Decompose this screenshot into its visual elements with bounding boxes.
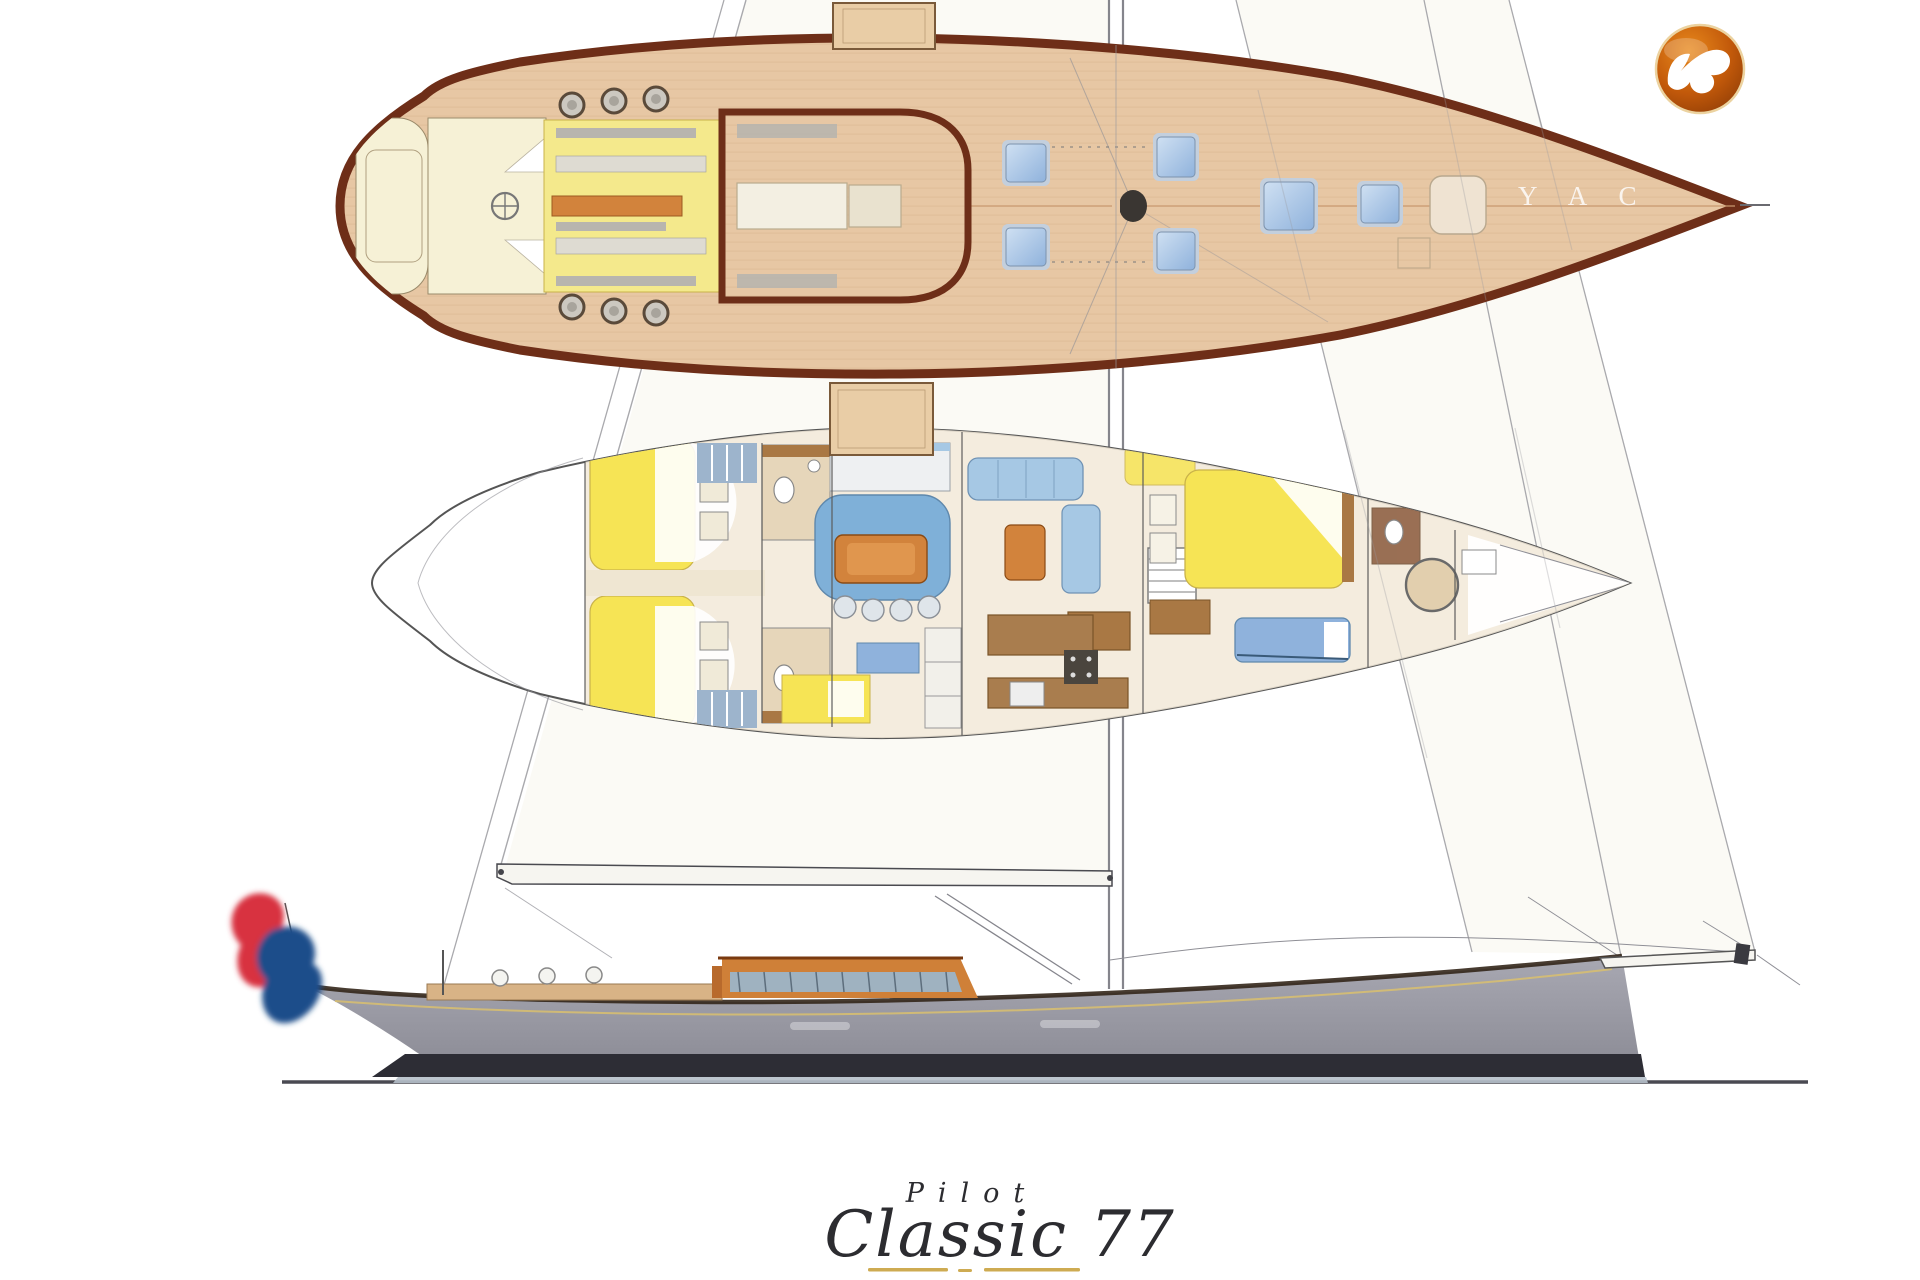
deck-vents [492, 967, 602, 986]
owner-headboard [1342, 476, 1354, 582]
hull-highlight-b [1040, 1020, 1100, 1028]
cockpit-bench-2 [556, 156, 706, 172]
toilet-aft-port [774, 477, 794, 503]
cockpit-well [428, 118, 546, 294]
seagull-badge-icon[interactable] [1655, 24, 1745, 114]
ensign-flag [231, 893, 322, 1023]
boom-end-fitting [498, 869, 504, 875]
galley-counter-outboard [988, 678, 1128, 708]
galley-seat [857, 643, 919, 673]
yacht-line-drawing: Y A C Pilot Classic 77 [0, 0, 1920, 1280]
galley-sink [1010, 682, 1044, 706]
coachroof-grabrail-stbd [737, 274, 837, 288]
watermark-text: Y A C [1518, 181, 1650, 211]
deckhouse-aft-step [712, 966, 722, 998]
boom-vang-b [947, 894, 1080, 980]
fridge-cabinet [925, 628, 961, 728]
anchor-windlass [1430, 176, 1486, 234]
crew-berth-pillow [1324, 622, 1348, 658]
dinette-table-top [847, 543, 915, 575]
model-name: Classic 77 [824, 1198, 1175, 1272]
cockpit-coaming-profile [427, 984, 722, 1000]
nav-seat [1062, 505, 1100, 593]
fwd-toilet [1385, 520, 1403, 544]
skylight-hatch-small [849, 185, 901, 227]
sink-aft-port [808, 460, 820, 472]
bowsprit-end-fitting [1734, 943, 1751, 965]
bow-shelf [1462, 550, 1496, 574]
coachroof-grabrail-port [737, 124, 837, 138]
cockpit-bench-3 [556, 222, 666, 231]
mainsheet [505, 888, 612, 958]
bobstay [1757, 955, 1800, 985]
galley-counter-inboard [988, 615, 1093, 655]
skylight-hatch-large [737, 183, 847, 229]
bow-locker-round [1406, 559, 1458, 611]
cockpit-bench-1 [556, 128, 696, 138]
pantry-bunk-sheet [828, 681, 864, 717]
head-aft-port-joinery [762, 445, 830, 457]
boot-top-light [393, 1077, 1648, 1083]
gooseneck-fitting [1107, 875, 1113, 881]
cockpit-bench-5 [556, 276, 696, 286]
companionway-box-plan [830, 383, 933, 455]
hull-highlight-a [790, 1022, 850, 1030]
companionway-hatch-top [833, 3, 935, 49]
aft-deck-locker [356, 118, 428, 294]
aft-passage [585, 570, 765, 596]
waterline-band [372, 1054, 1645, 1077]
fwd-wardrobe [1150, 600, 1210, 634]
title-block: Pilot Classic 77 [824, 1178, 1175, 1272]
galley-stove [1064, 650, 1098, 684]
coffee-table [1005, 525, 1045, 580]
mast-plan-section [1119, 190, 1147, 222]
yacht-drawing-page: Y A C Pilot Classic 77 [0, 0, 1920, 1280]
cockpit-bench-4 [556, 238, 706, 254]
cockpit-table [552, 196, 682, 216]
